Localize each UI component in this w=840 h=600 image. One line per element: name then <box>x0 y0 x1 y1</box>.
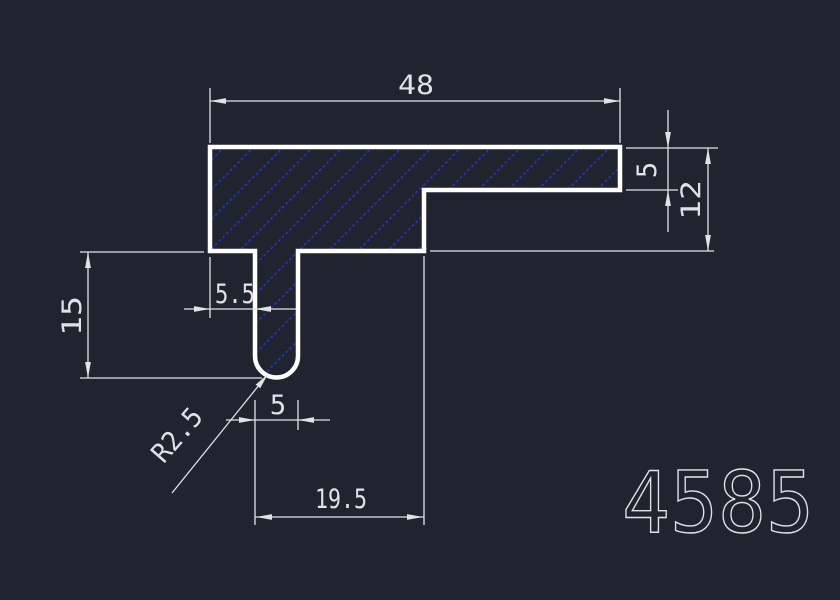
dim-value: 12 <box>676 180 707 220</box>
part-number: 4585 <box>622 454 814 553</box>
dim-value: 5 <box>270 390 286 421</box>
dim-value: 19.5 <box>315 484 367 515</box>
dim-value: 15 <box>57 296 88 336</box>
dim-value: 5.5 <box>215 279 255 310</box>
cad-canvas[interactable]: 48 5 12 15 <box>0 0 840 600</box>
dim-value: 48 <box>398 70 434 101</box>
drawing-viewport: 48 5 12 15 <box>0 0 840 600</box>
dim-value: 5 <box>632 162 663 178</box>
